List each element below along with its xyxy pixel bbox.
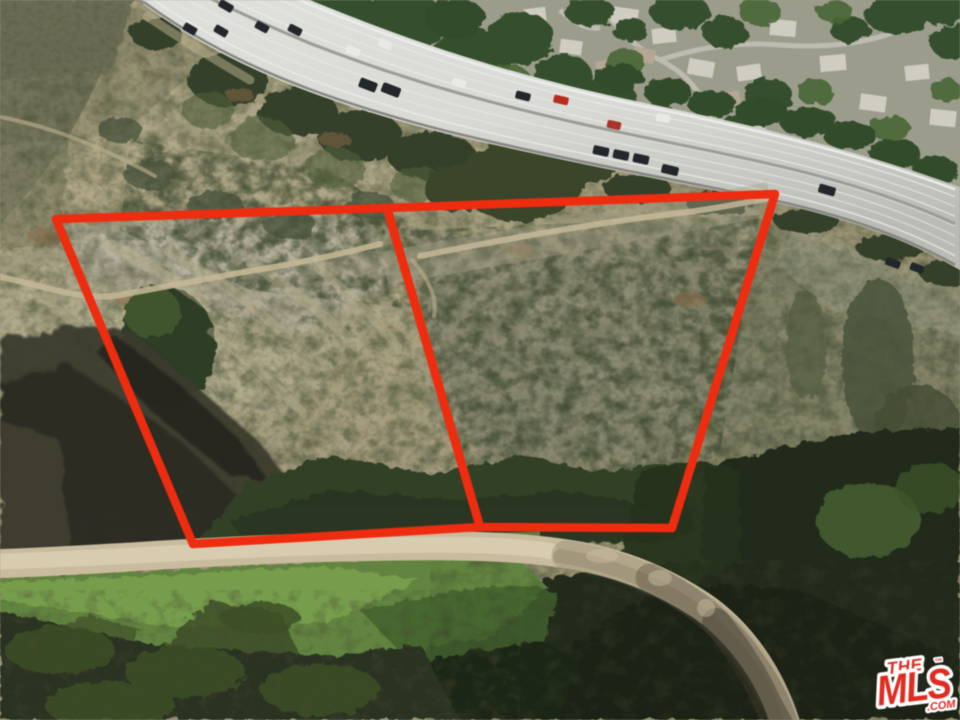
svg-text:™: ™ — [934, 657, 943, 667]
